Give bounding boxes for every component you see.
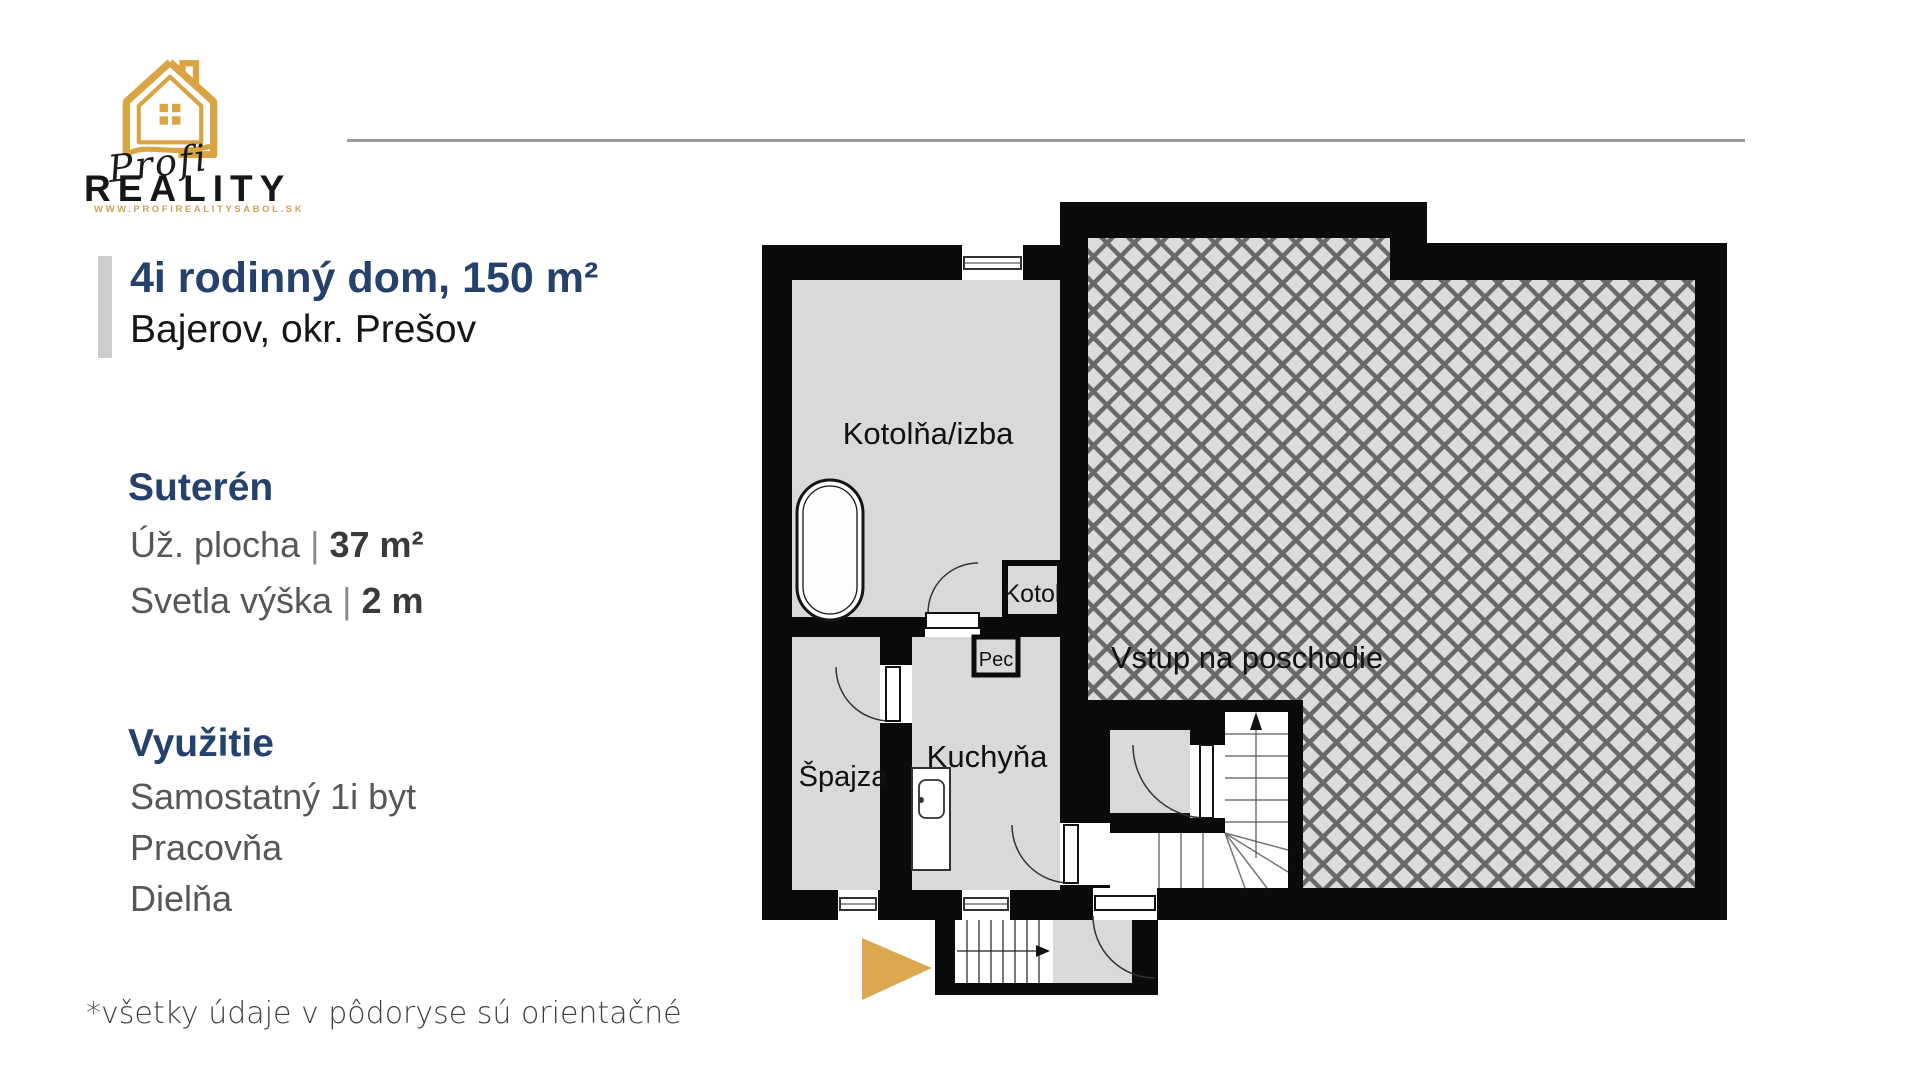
label-kotolna: Kotolňa/izba <box>843 416 1014 451</box>
ceiling-height-label: Svetla výška <box>130 580 332 621</box>
footnote-disclaimer: *všetky údaje v pôdoryse sú orientačné <box>86 996 682 1031</box>
page: Profi REALITY WWW.PROFIREALITYSABOL.SK 4… <box>0 0 1920 1080</box>
bathtub-icon <box>797 480 863 620</box>
floor-section-heading: Suterén <box>128 466 273 510</box>
separator: | <box>300 524 329 565</box>
usage-section-heading: Využitie <box>128 722 274 766</box>
ceiling-height-row: Svetla výška|2 m <box>130 580 423 622</box>
title-accent-bar <box>98 256 112 358</box>
label-kotol: Kotol <box>1004 580 1061 608</box>
usage-item: Dielňa <box>130 878 232 920</box>
kitchen-counter-icon <box>912 768 950 870</box>
hall-interior <box>1110 730 1190 813</box>
window-icon <box>962 890 1010 920</box>
floor-area-label: Úž. plocha <box>130 524 300 565</box>
top-divider-line <box>347 139 1745 142</box>
floor-area-value: 37 m² <box>329 524 423 565</box>
label-vstup: Vstup na poschodie <box>1111 640 1383 675</box>
window-icon <box>962 245 1023 280</box>
page-subtitle: Bajerov, okr. Prešov <box>130 308 476 352</box>
landing-interior <box>1053 920 1132 983</box>
label-spajza: Špajza <box>799 759 889 793</box>
label-kuchyna: Kuchyňa <box>927 739 1048 774</box>
separator: | <box>332 580 361 621</box>
logo-website: WWW.PROFIREALITYSABOL.SK <box>94 204 304 215</box>
usage-item: Samostatný 1i byt <box>130 776 416 818</box>
usage-item: Pracovňa <box>130 827 282 869</box>
gold-arrow-icon <box>862 938 932 1000</box>
ceiling-height-value: 2 m <box>361 580 423 621</box>
floor-area-row: Úž. plocha|37 m² <box>130 524 424 566</box>
floorplan-svg: Kotolňa/izba Vstup na poschodie Špajza K… <box>740 180 1750 1010</box>
window-icon <box>838 890 878 920</box>
page-title: 4i rodinný dom, 150 m² <box>130 254 598 303</box>
label-pec: Pec <box>979 649 1013 671</box>
